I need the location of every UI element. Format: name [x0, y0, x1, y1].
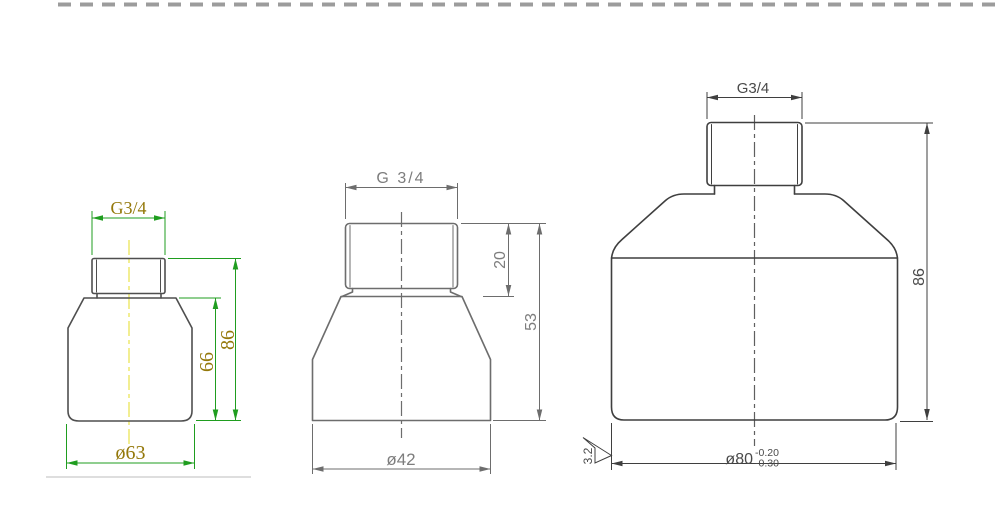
- left-body-height-value: 66: [196, 352, 218, 372]
- left-diameter-value: ø63: [116, 442, 146, 464]
- right-total-height-value: 86: [911, 268, 928, 286]
- arrowhead: [67, 460, 78, 466]
- arrowhead: [233, 259, 239, 270]
- arrowhead: [154, 215, 165, 221]
- arrowhead: [213, 410, 219, 421]
- technical-drawing-canvas: G3/4 66 86 ø63: [0, 0, 1000, 528]
- arrowhead: [213, 298, 219, 309]
- left-dimension-texts: G3/4 66 86 ø63: [111, 198, 240, 464]
- arrowhead: [791, 95, 802, 101]
- arrowhead: [506, 224, 512, 235]
- arrowhead: [346, 185, 357, 191]
- left-total-height-value: 86: [217, 330, 239, 350]
- right-diameter-dim-lines: [612, 423, 897, 470]
- left-thread-label: G3/4: [111, 198, 147, 218]
- arrowhead: [612, 461, 623, 467]
- arrowhead: [885, 461, 896, 467]
- middle-view: G 3/4 20 53 ø42: [313, 170, 547, 474]
- arrowhead: [537, 410, 543, 421]
- drawing-svg: G3/4 66 86 ø63: [0, 0, 1000, 528]
- arrowhead: [707, 95, 718, 101]
- middle-thread-height-value: 20: [492, 251, 509, 269]
- right-diameter-value: ø80: [725, 451, 753, 468]
- arrowhead: [480, 466, 491, 472]
- arrowhead: [537, 224, 543, 235]
- left-view: G3/4 66 86 ø63: [67, 198, 242, 469]
- arrowhead: [92, 215, 103, 221]
- middle-dimensions: [313, 183, 547, 474]
- arrowhead: [447, 185, 458, 191]
- left-part-outline: [68, 259, 192, 422]
- right-view: G3/4 86 ø80 -0.20 -0.30 3.2: [581, 80, 933, 470]
- arrowhead: [184, 460, 195, 466]
- right-dimensions: [583, 92, 933, 470]
- right-diameter-tolerance-lower: -0.30: [755, 458, 779, 470]
- arrowhead: [233, 410, 239, 421]
- right-dimension-texts: G3/4 86 ø80 -0.20 -0.30 3.2: [581, 80, 928, 470]
- left-dimensions: [67, 211, 242, 469]
- middle-total-height-value: 53: [523, 313, 540, 331]
- middle-diameter-value: ø42: [386, 450, 415, 469]
- middle-thread-label: G 3/4: [376, 170, 425, 187]
- arrowhead: [924, 123, 930, 134]
- right-thread-label: G3/4: [737, 80, 770, 97]
- arrowhead: [313, 466, 324, 472]
- arrowhead: [506, 285, 512, 296]
- arrowhead: [924, 409, 930, 420]
- surface-roughness-value: 3.2: [581, 447, 595, 464]
- left-body: [68, 298, 192, 421]
